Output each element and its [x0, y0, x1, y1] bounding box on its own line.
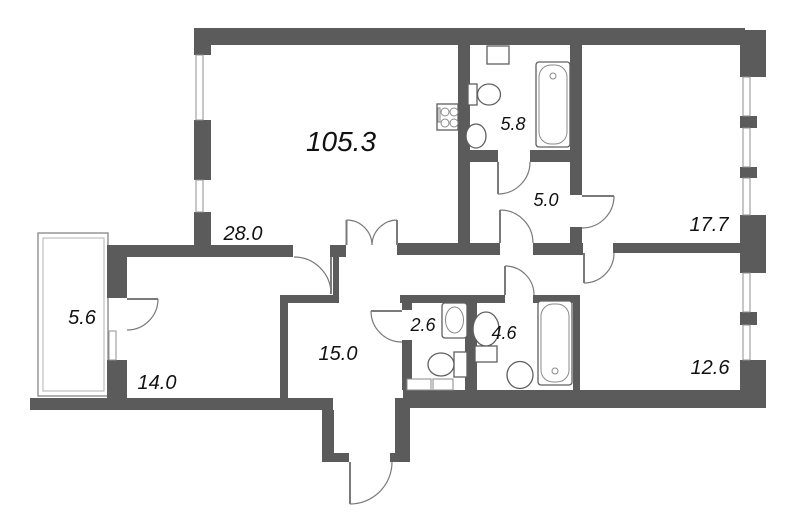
toilet-top-icon — [468, 84, 501, 105]
cabinet-icon — [407, 379, 431, 390]
label-total-area: 105.3 — [306, 126, 376, 157]
bathtub-top-icon — [536, 62, 570, 147]
double-door-living-hall — [347, 220, 398, 245]
label-bedroom-bottom-right: 12.6 — [691, 357, 731, 379]
bathtub-bottom-icon — [538, 301, 572, 385]
label-bathroom-top: 5.8 — [500, 114, 525, 134]
door-bedroom-right — [582, 196, 614, 228]
window-balcony — [109, 331, 116, 360]
floor-plan-canvas: 105.3 28.0 5.8 5.0 17.7 5.6 14.0 15.0 2.… — [0, 0, 800, 521]
window-right-1 — [743, 77, 750, 116]
door-bathroom-bottom — [505, 266, 534, 295]
entrance-door — [350, 462, 392, 504]
label-corridor: 5.0 — [533, 190, 558, 210]
fixtures — [407, 46, 572, 390]
door-bathroom-top — [498, 162, 530, 194]
door-bedroom-bottom-right — [584, 253, 614, 283]
cabinet-icon-2 — [433, 379, 453, 390]
toilet-wc-icon — [428, 352, 467, 377]
sink-wc-icon — [442, 303, 467, 338]
window-right-5 — [743, 325, 750, 360]
window-right-4 — [743, 273, 750, 312]
window-right-2 — [743, 128, 750, 167]
label-living-kitchen: 28.0 — [223, 223, 263, 245]
label-balcony: 5.6 — [68, 307, 97, 329]
door-balcony — [127, 299, 158, 330]
window-right-3 — [743, 178, 750, 215]
window-left-2 — [196, 180, 203, 212]
label-wc: 2.6 — [409, 315, 436, 335]
stove-icon — [437, 104, 458, 130]
door-hall-corridor — [500, 210, 533, 243]
label-bedroom-left: 14.0 — [138, 372, 177, 394]
sink-top-icon — [466, 124, 486, 148]
door-living-bedroom-left — [294, 257, 331, 294]
door-wc — [371, 311, 402, 342]
window-left-1 — [196, 55, 203, 120]
sink-bottom-icon — [507, 362, 533, 389]
label-hall: 15.0 — [319, 343, 358, 365]
label-bedroom-right: 17.7 — [690, 214, 730, 236]
label-bathroom-bottom: 4.6 — [491, 323, 517, 343]
floor-plan-drawing: 105.3 28.0 5.8 5.0 17.7 5.6 14.0 15.0 2.… — [0, 0, 800, 521]
ventilation-shaft — [487, 46, 509, 64]
